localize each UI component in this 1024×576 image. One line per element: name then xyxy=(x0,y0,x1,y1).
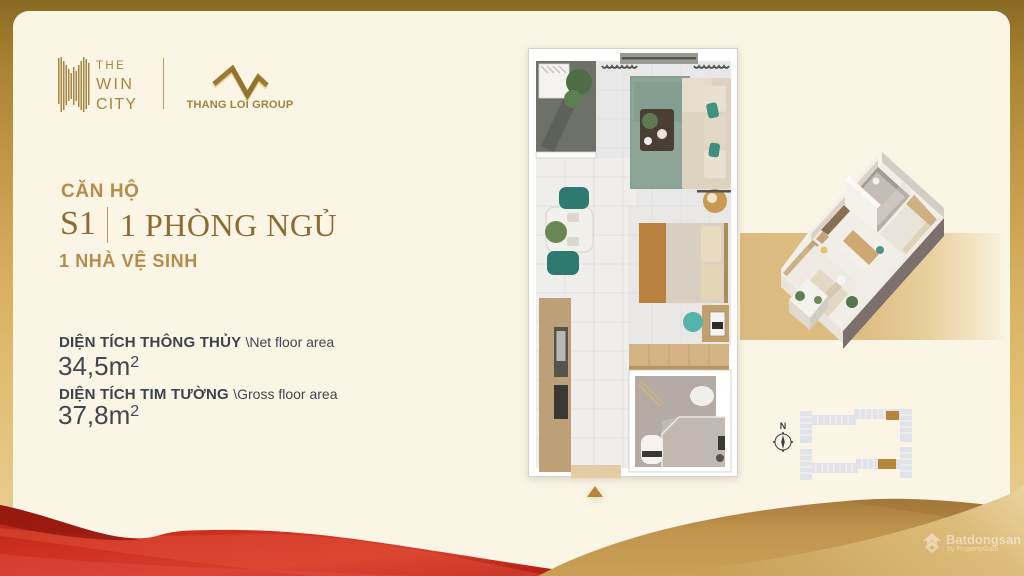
svg-text:N: N xyxy=(780,421,787,431)
